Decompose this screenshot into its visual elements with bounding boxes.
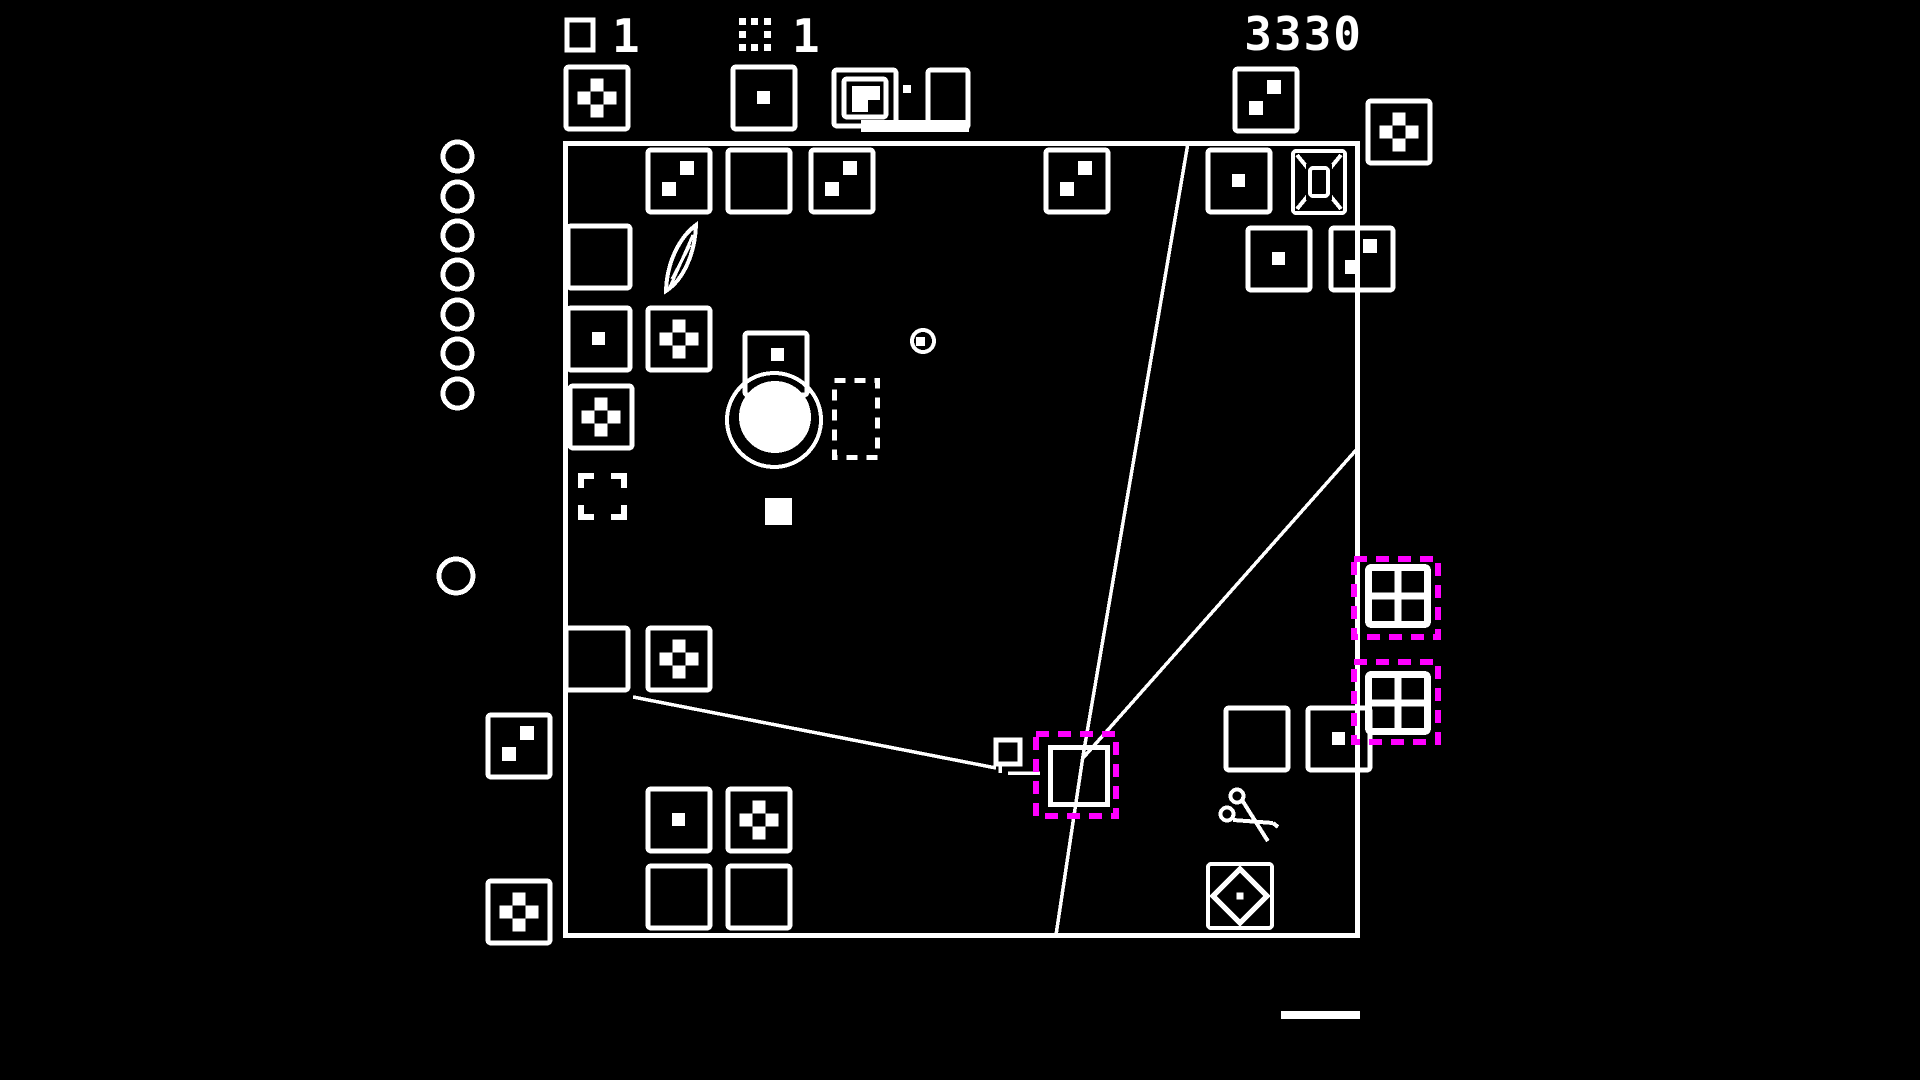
tile-blank[interactable] xyxy=(1223,705,1291,773)
plain-icon xyxy=(565,223,633,291)
stack-icon xyxy=(831,60,976,140)
token-circle xyxy=(443,221,472,250)
diamond-icon xyxy=(1206,862,1274,930)
tile-dice-4[interactable] xyxy=(645,625,713,693)
game-screen: 1 1 3330 xyxy=(0,0,1920,1080)
token-circle xyxy=(443,260,472,289)
dice4-icon xyxy=(1365,98,1433,166)
dice4-icon xyxy=(567,383,635,451)
bracket-icon xyxy=(578,473,627,520)
dice1-icon xyxy=(730,64,798,132)
plain-icon xyxy=(725,863,793,931)
tile-dice-1[interactable] xyxy=(730,64,798,132)
tile-dice-4[interactable] xyxy=(645,305,713,373)
plain-icon xyxy=(725,147,793,215)
token-circle xyxy=(443,182,472,211)
bottom-dash-marker xyxy=(1281,1011,1360,1019)
dice1-icon xyxy=(645,786,713,854)
ghost-zone[interactable] xyxy=(832,378,880,460)
dice1-icon xyxy=(565,305,633,373)
tile-dice-1[interactable] xyxy=(1245,225,1313,293)
token-circle xyxy=(439,559,473,593)
tile-dice-4[interactable] xyxy=(485,878,553,946)
token-circle xyxy=(443,142,472,171)
dice4-icon xyxy=(645,625,713,693)
target-zone[interactable] xyxy=(1033,731,1119,819)
portal-icon xyxy=(1290,148,1348,216)
tile-dice-2[interactable] xyxy=(1232,66,1300,134)
plain-icon xyxy=(563,625,631,693)
target-zone[interactable] xyxy=(1351,556,1441,640)
grid-count: 1 xyxy=(792,13,822,59)
dotted-square-icon xyxy=(739,18,771,52)
dice4-icon xyxy=(563,64,631,132)
tile-dice-1[interactable] xyxy=(1205,147,1273,215)
dice1-icon xyxy=(1245,225,1313,293)
tile-dice-4[interactable] xyxy=(725,786,793,854)
slot-marker[interactable] xyxy=(578,473,627,520)
dice4-icon xyxy=(645,305,713,373)
dice2-icon xyxy=(1328,225,1396,293)
tile-blank[interactable] xyxy=(725,863,793,931)
tile-portal[interactable] xyxy=(1290,148,1348,216)
tile-dice-1[interactable] xyxy=(742,330,810,398)
scissors-icon xyxy=(1218,783,1280,847)
tile-stack[interactable] xyxy=(831,60,976,140)
tile-blank[interactable] xyxy=(565,223,633,291)
tile-dice-1[interactable] xyxy=(565,305,633,373)
plain-icon xyxy=(645,863,713,931)
token-circle xyxy=(443,300,472,329)
tile-blank[interactable] xyxy=(563,625,631,693)
tile-dice-2[interactable] xyxy=(645,147,713,215)
tile-dice-2[interactable] xyxy=(485,712,553,780)
dice4-icon xyxy=(725,786,793,854)
token-circle xyxy=(443,379,472,408)
tile-dice-4[interactable] xyxy=(567,383,635,451)
dice2-icon xyxy=(1043,147,1111,215)
tile-diamond[interactable] xyxy=(1206,862,1274,930)
tile-dice-4[interactable] xyxy=(563,64,631,132)
dice2-icon xyxy=(1232,66,1300,134)
tile-dice-1[interactable] xyxy=(645,786,713,854)
dice4-icon xyxy=(485,878,553,946)
tile-dice-2[interactable] xyxy=(808,147,876,215)
dice1t-icon xyxy=(742,330,810,398)
score: 3330 xyxy=(1100,11,1363,57)
token-circle xyxy=(443,339,472,368)
tile-leaf[interactable] xyxy=(660,221,702,296)
dice2-icon xyxy=(485,712,553,780)
dice2-icon xyxy=(645,147,713,215)
leaf-icon xyxy=(660,221,702,296)
square-count: 1 xyxy=(612,13,642,59)
dice2-icon xyxy=(808,147,876,215)
tile-dice-4[interactable] xyxy=(1365,98,1433,166)
scissors-marker[interactable] xyxy=(1218,783,1280,847)
target-zone[interactable] xyxy=(1351,659,1441,745)
tile-dice-2[interactable] xyxy=(1328,225,1396,293)
square-outline-icon xyxy=(564,17,596,53)
tile-dice-2[interactable] xyxy=(1043,147,1111,215)
plain-icon xyxy=(1223,705,1291,773)
dice1-icon xyxy=(1205,147,1273,215)
tile-blank[interactable] xyxy=(725,147,793,215)
tile-blank[interactable] xyxy=(645,863,713,931)
